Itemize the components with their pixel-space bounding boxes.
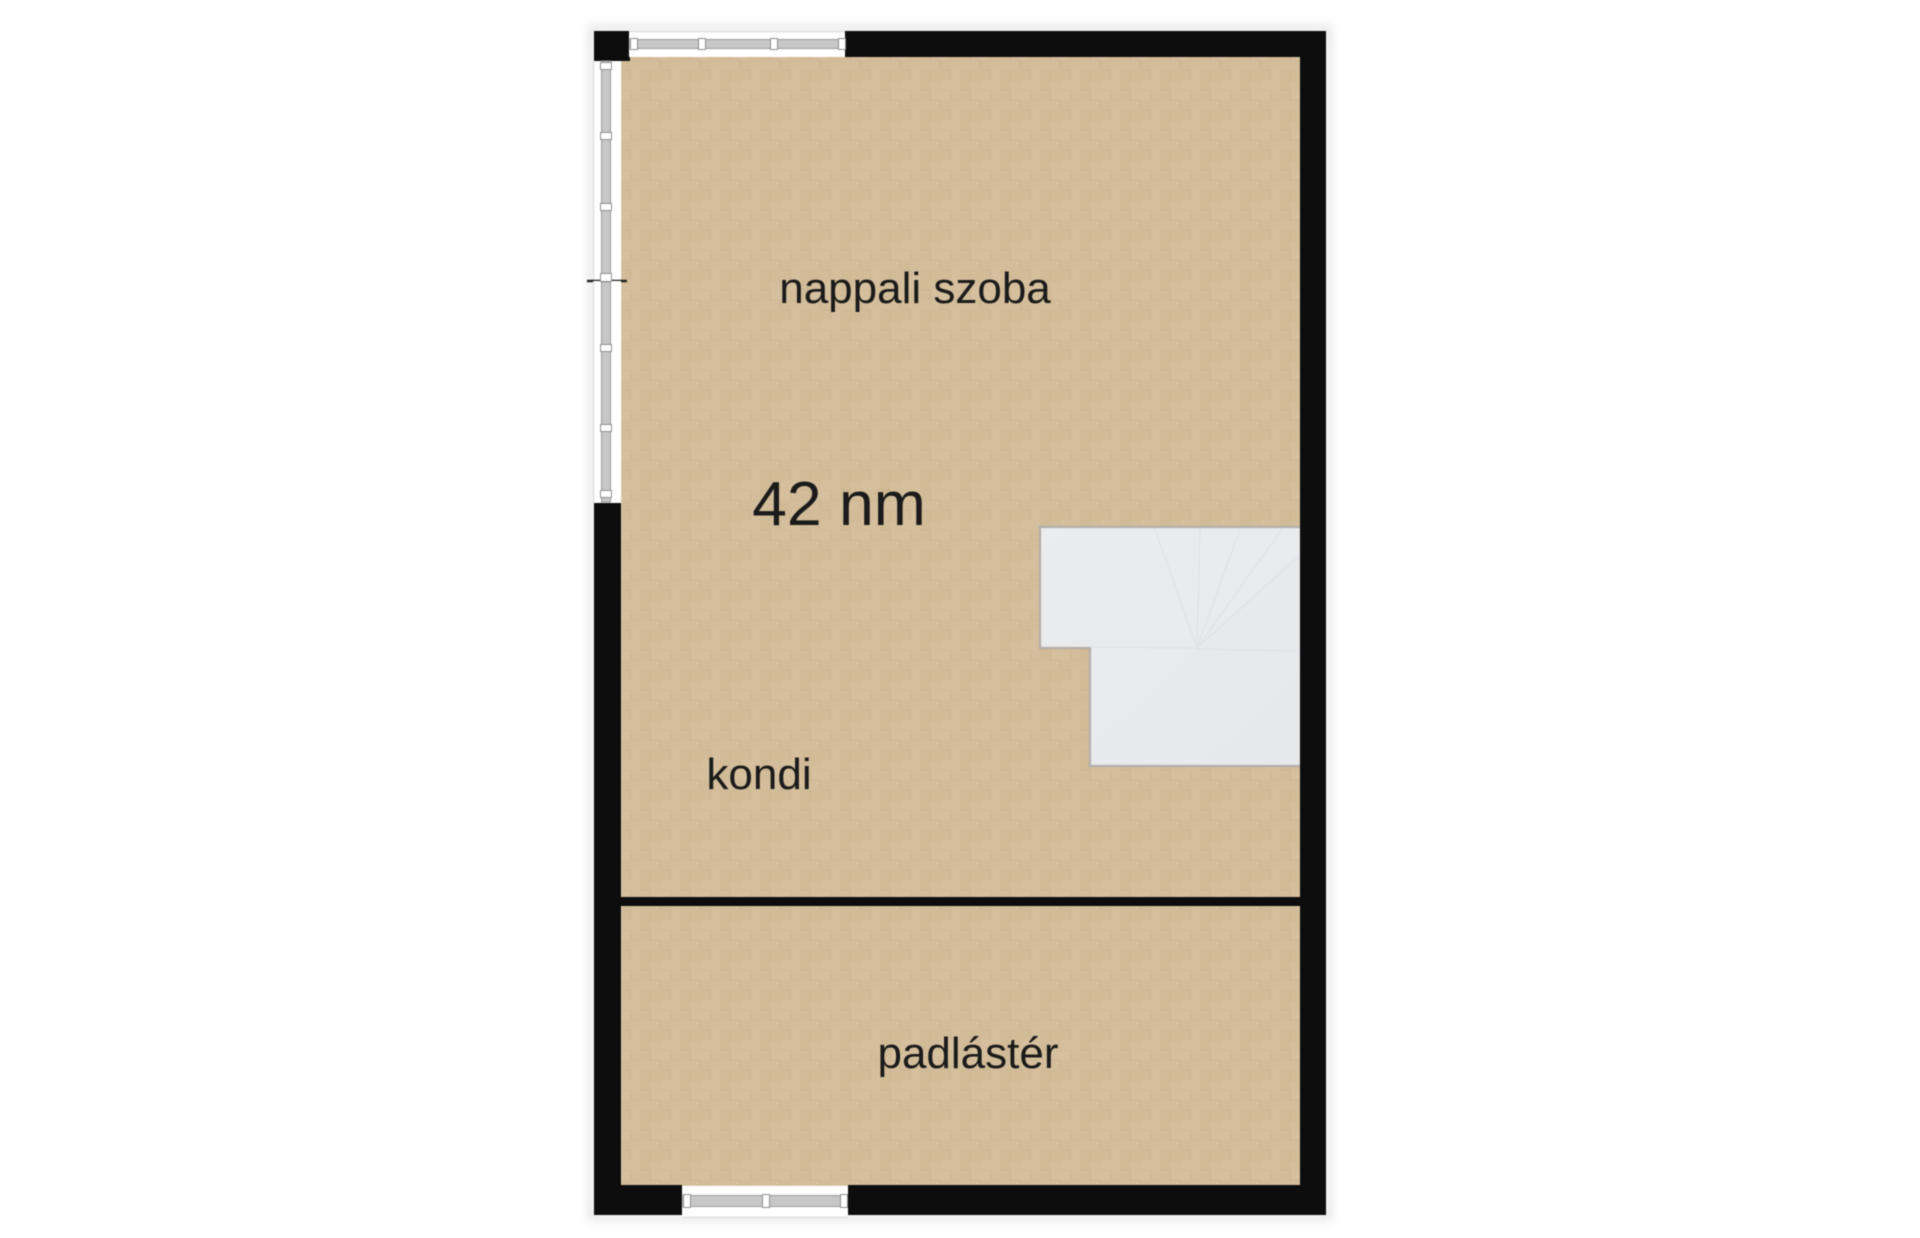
svg-text:kondi: kondi — [706, 750, 811, 799]
svg-text:nappali szoba: nappali szoba — [779, 264, 1051, 313]
svg-text:padlástér: padlástér — [877, 1029, 1058, 1078]
svg-text:42 nm: 42 nm — [752, 469, 926, 539]
